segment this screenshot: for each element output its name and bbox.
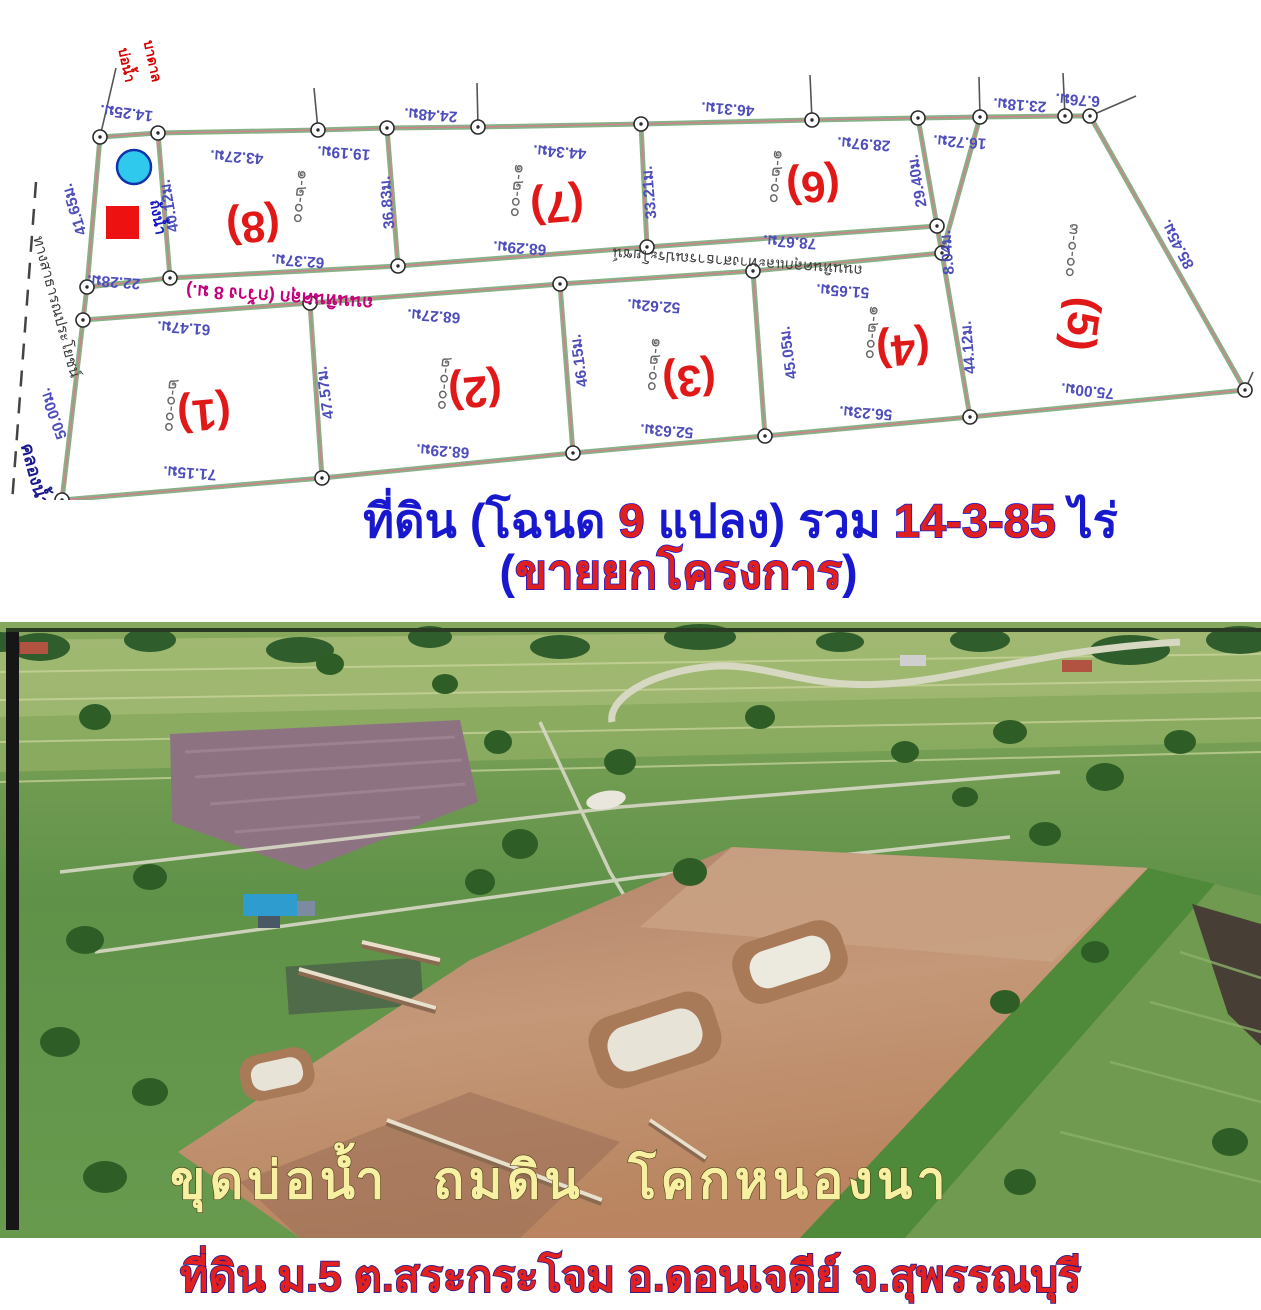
map-measurement: 51.65ม.: [816, 280, 870, 301]
survey-vertex-dot: [978, 115, 981, 118]
map-measurement: 68.27ม.: [407, 305, 461, 326]
survey-vertex-dot: [1243, 388, 1246, 391]
plot-boundary-red: [560, 284, 573, 453]
photo-overlay-text: ขุดบ่อน้ำ ถมดิน โคกหนองนา: [170, 1138, 1170, 1221]
map-measurement: 71.15ม.: [163, 462, 217, 483]
footer-caption: ที่ดิน ม.5 ต.สระกระโจม อ.ดอนเจดีย์ จ.สุพ…: [0, 1242, 1261, 1310]
map-measurement: 23.18ม.: [993, 94, 1047, 115]
survey-vertex-dot: [810, 118, 813, 121]
survey-vertex-dot: [763, 434, 766, 437]
plot-area-label: ๑-๒-๐๐: [290, 169, 314, 225]
headline-part: ไร่: [1056, 494, 1118, 547]
plot-boundary-red: [387, 127, 478, 128]
map-label: คลองน้ำป่า: [17, 440, 63, 500]
plot-number: (7): [528, 180, 586, 234]
headline-part: (: [499, 545, 515, 598]
water-tank-square: [106, 206, 139, 239]
headline: ที่ดิน (โฉนด 9 แปลง) รวม 14-3-85 ไร่ (ขา…: [0, 496, 1261, 598]
headline-part: แปลง) รวม: [645, 494, 894, 547]
plot-number: (5): [1054, 294, 1110, 354]
plot-number: (8): [224, 200, 282, 254]
plot-number: (6): [784, 160, 842, 214]
survey-vertex-dot: [316, 128, 319, 131]
survey-vertex-dot: [320, 476, 323, 479]
headline-part: ): [842, 545, 858, 598]
map-measurement: 36.83ม.: [377, 175, 399, 230]
map-measurement: 33.21ม.: [639, 165, 661, 220]
map-measurement: 68.29ม.: [416, 440, 470, 461]
survey-vertex-dot: [639, 122, 642, 125]
plot-number: (1): [175, 388, 233, 442]
survey-vertex-dot: [571, 451, 574, 454]
photo-left-bar: [6, 630, 19, 1230]
map-measurement: 44.12ม.: [958, 320, 980, 375]
plot-number: (3): [660, 354, 718, 408]
plot-area-label: ๓-๐-๐๐: [1062, 223, 1086, 279]
map-measurement: 41.65ม.: [59, 181, 91, 237]
headline-line2: (ขายยกโครงการ): [48, 547, 1261, 598]
map-measurement: 6.76ม.: [1055, 89, 1101, 109]
plot-boundary-red: [753, 271, 765, 436]
map-measurement: 56.23ม.: [839, 402, 893, 423]
map-measurement: 14.25ม.: [99, 101, 154, 124]
map-measurement: 61.47ม.: [157, 317, 211, 338]
survey-vertex-dot: [1088, 114, 1091, 117]
plot-area-label: ๑-๒-๐๐: [644, 337, 668, 393]
well-circle: [117, 150, 151, 184]
map-measurement: 8.04ม.: [937, 229, 958, 275]
survey-vertex-dot: [1063, 114, 1066, 117]
survey-vertex-dot: [396, 264, 399, 267]
map-measurement: 43.27ม.: [210, 146, 264, 167]
headline-part: ขายยกโครงการ: [515, 545, 842, 598]
map-label: บ่อน้ำ: [115, 46, 141, 84]
headline-part: 9: [618, 494, 644, 547]
plot-area-label: ๒-๐-๐๐: [434, 356, 458, 411]
survey-vertex-dot: [476, 125, 479, 128]
headline-part: 14-3-85: [894, 494, 1056, 547]
plot-boundary-red: [1090, 116, 1245, 390]
map-measurement: 75.00ม.: [1060, 379, 1115, 401]
survey-vertex-dot: [168, 276, 171, 279]
map-measurement: 50.00ม.: [37, 386, 71, 442]
survey-vertex-dot: [935, 224, 938, 227]
map-measurement: 22.28ม.: [87, 271, 141, 292]
plot-area-label: ๑-๒-๐๐: [507, 163, 531, 219]
survey-vertex-dot: [98, 135, 101, 138]
map-measurement: 28.97ม.: [837, 133, 891, 154]
survey-vertex-dot: [385, 126, 388, 129]
map-measurement: 68.29ม.: [493, 237, 547, 258]
headline-part: ที่ดิน (โฉนด: [363, 494, 618, 547]
plot-area-label: ๑-๒-๐๐: [862, 305, 886, 361]
land-plot-map: 14.25ม.43.27ม.19.19ม.24.48ม.44.34ม.46.31…: [0, 0, 1261, 500]
map-measurement: 24.48ม.: [404, 104, 458, 125]
map-measurement: 62.37ม.: [271, 250, 325, 271]
map-measurement: 16.72ม.: [933, 131, 987, 152]
photo-top-edge: [6, 628, 1261, 632]
headline-line1: ที่ดิน (โฉนด 9 แปลง) รวม 14-3-85 ไร่: [110, 496, 1261, 547]
map-measurement: 46.15ม.: [567, 333, 591, 388]
map-measurement: 52.63ม.: [640, 420, 694, 441]
survey-vertex-dot: [968, 415, 971, 418]
plot-boundary-red: [980, 116, 1065, 117]
map-label: บาดาล: [141, 39, 165, 84]
plot-area-label: ๑-๒-๐๐: [766, 149, 790, 205]
survey-vertex-dot: [81, 318, 84, 321]
survey-vertex-dot: [916, 116, 919, 119]
plot-boundary-red: [560, 271, 753, 284]
map-measurement: 52.62ม.: [627, 295, 681, 316]
survey-vertex-dot: [156, 131, 159, 134]
map-measurement: 46.31ม.: [701, 98, 755, 119]
survey-vertex-dot: [558, 282, 561, 285]
plot-area-label: ๒-๐-๐๐: [161, 378, 185, 433]
map-measurement: 45.05ม.: [776, 325, 800, 380]
plot-boundary-red: [918, 117, 980, 118]
map-measurement: 44.34ม.: [533, 141, 587, 162]
map-measurement: 19.19ม.: [317, 142, 371, 163]
plot-boundary-red: [87, 137, 100, 287]
map-label: ทางสาธารณประโยชน์: [29, 234, 84, 380]
